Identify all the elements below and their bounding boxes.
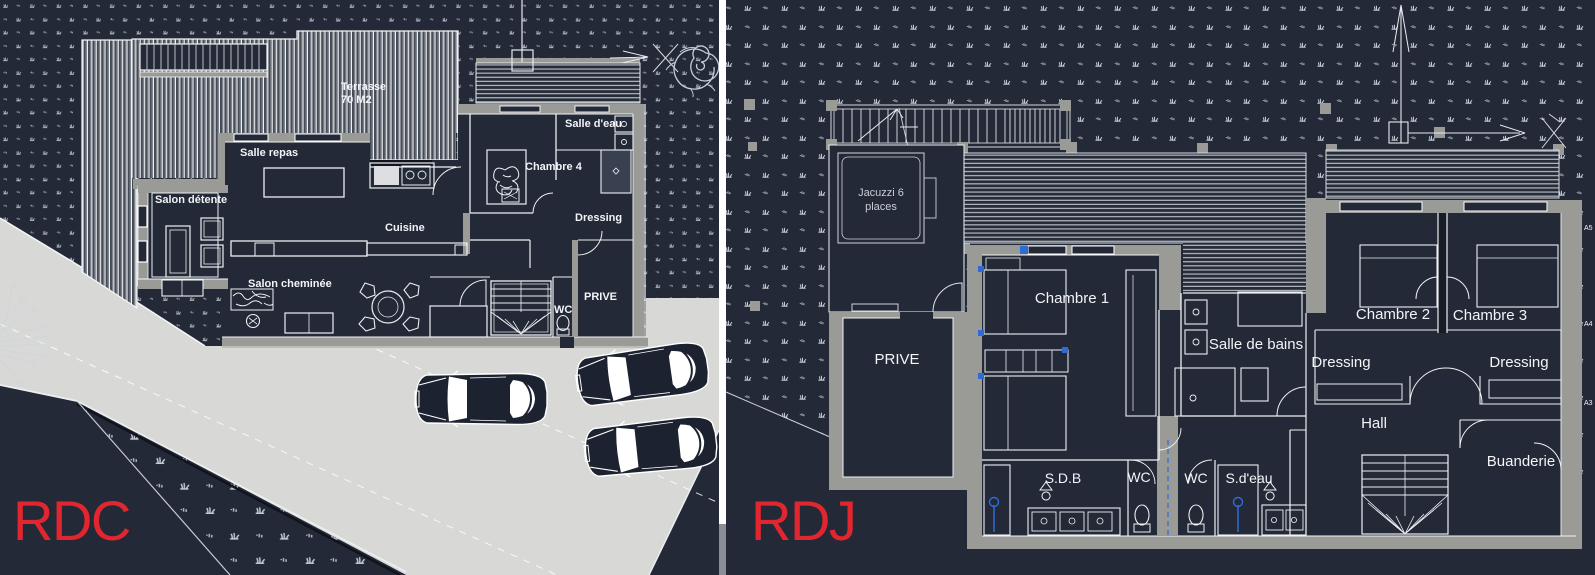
svg-text:places: places: [865, 201, 897, 213]
svg-text:Chambre 3: Chambre 3: [1453, 307, 1527, 324]
svg-text:Dressing: Dressing: [575, 212, 622, 224]
svg-text:A3: A3: [1584, 400, 1593, 407]
svg-text:Hall: Hall: [1361, 415, 1387, 432]
svg-text:Salle repas: Salle repas: [240, 147, 298, 159]
svg-text:RDJ: RDJ: [751, 489, 855, 552]
svg-text:Chambre 4: Chambre 4: [525, 161, 583, 173]
svg-text:Buanderie: Buanderie: [1487, 453, 1555, 470]
svg-text:Chambre 2: Chambre 2: [1356, 306, 1430, 323]
svg-text:WC: WC: [554, 304, 572, 316]
svg-text:Terrasse: Terrasse: [341, 81, 386, 93]
svg-text:Salon cheminée: Salon cheminée: [248, 278, 332, 290]
svg-text:Salle de bains: Salle de bains: [1209, 336, 1303, 353]
svg-text:S.D.B: S.D.B: [1045, 470, 1082, 486]
svg-text:Salle d'eau: Salle d'eau: [565, 118, 622, 130]
svg-text:Cuisine: Cuisine: [385, 222, 425, 234]
svg-text:S.d'eau: S.d'eau: [1225, 470, 1272, 486]
svg-text:Dressing: Dressing: [1489, 354, 1548, 371]
svg-text:PRIVE: PRIVE: [874, 351, 919, 368]
svg-text:A5: A5: [1584, 225, 1593, 232]
svg-text:Dressing: Dressing: [1311, 354, 1370, 371]
svg-text:A4: A4: [1584, 321, 1593, 328]
svg-text:RDC: RDC: [13, 489, 130, 552]
svg-text:Salon détente: Salon détente: [155, 194, 227, 206]
svg-text:Jacuzzi 6: Jacuzzi 6: [858, 187, 904, 199]
svg-text:Chambre 1: Chambre 1: [1035, 290, 1109, 307]
svg-text:PRIVE: PRIVE: [584, 291, 617, 303]
svg-text:WC: WC: [1127, 469, 1150, 485]
svg-text:70 M2: 70 M2: [341, 94, 372, 106]
